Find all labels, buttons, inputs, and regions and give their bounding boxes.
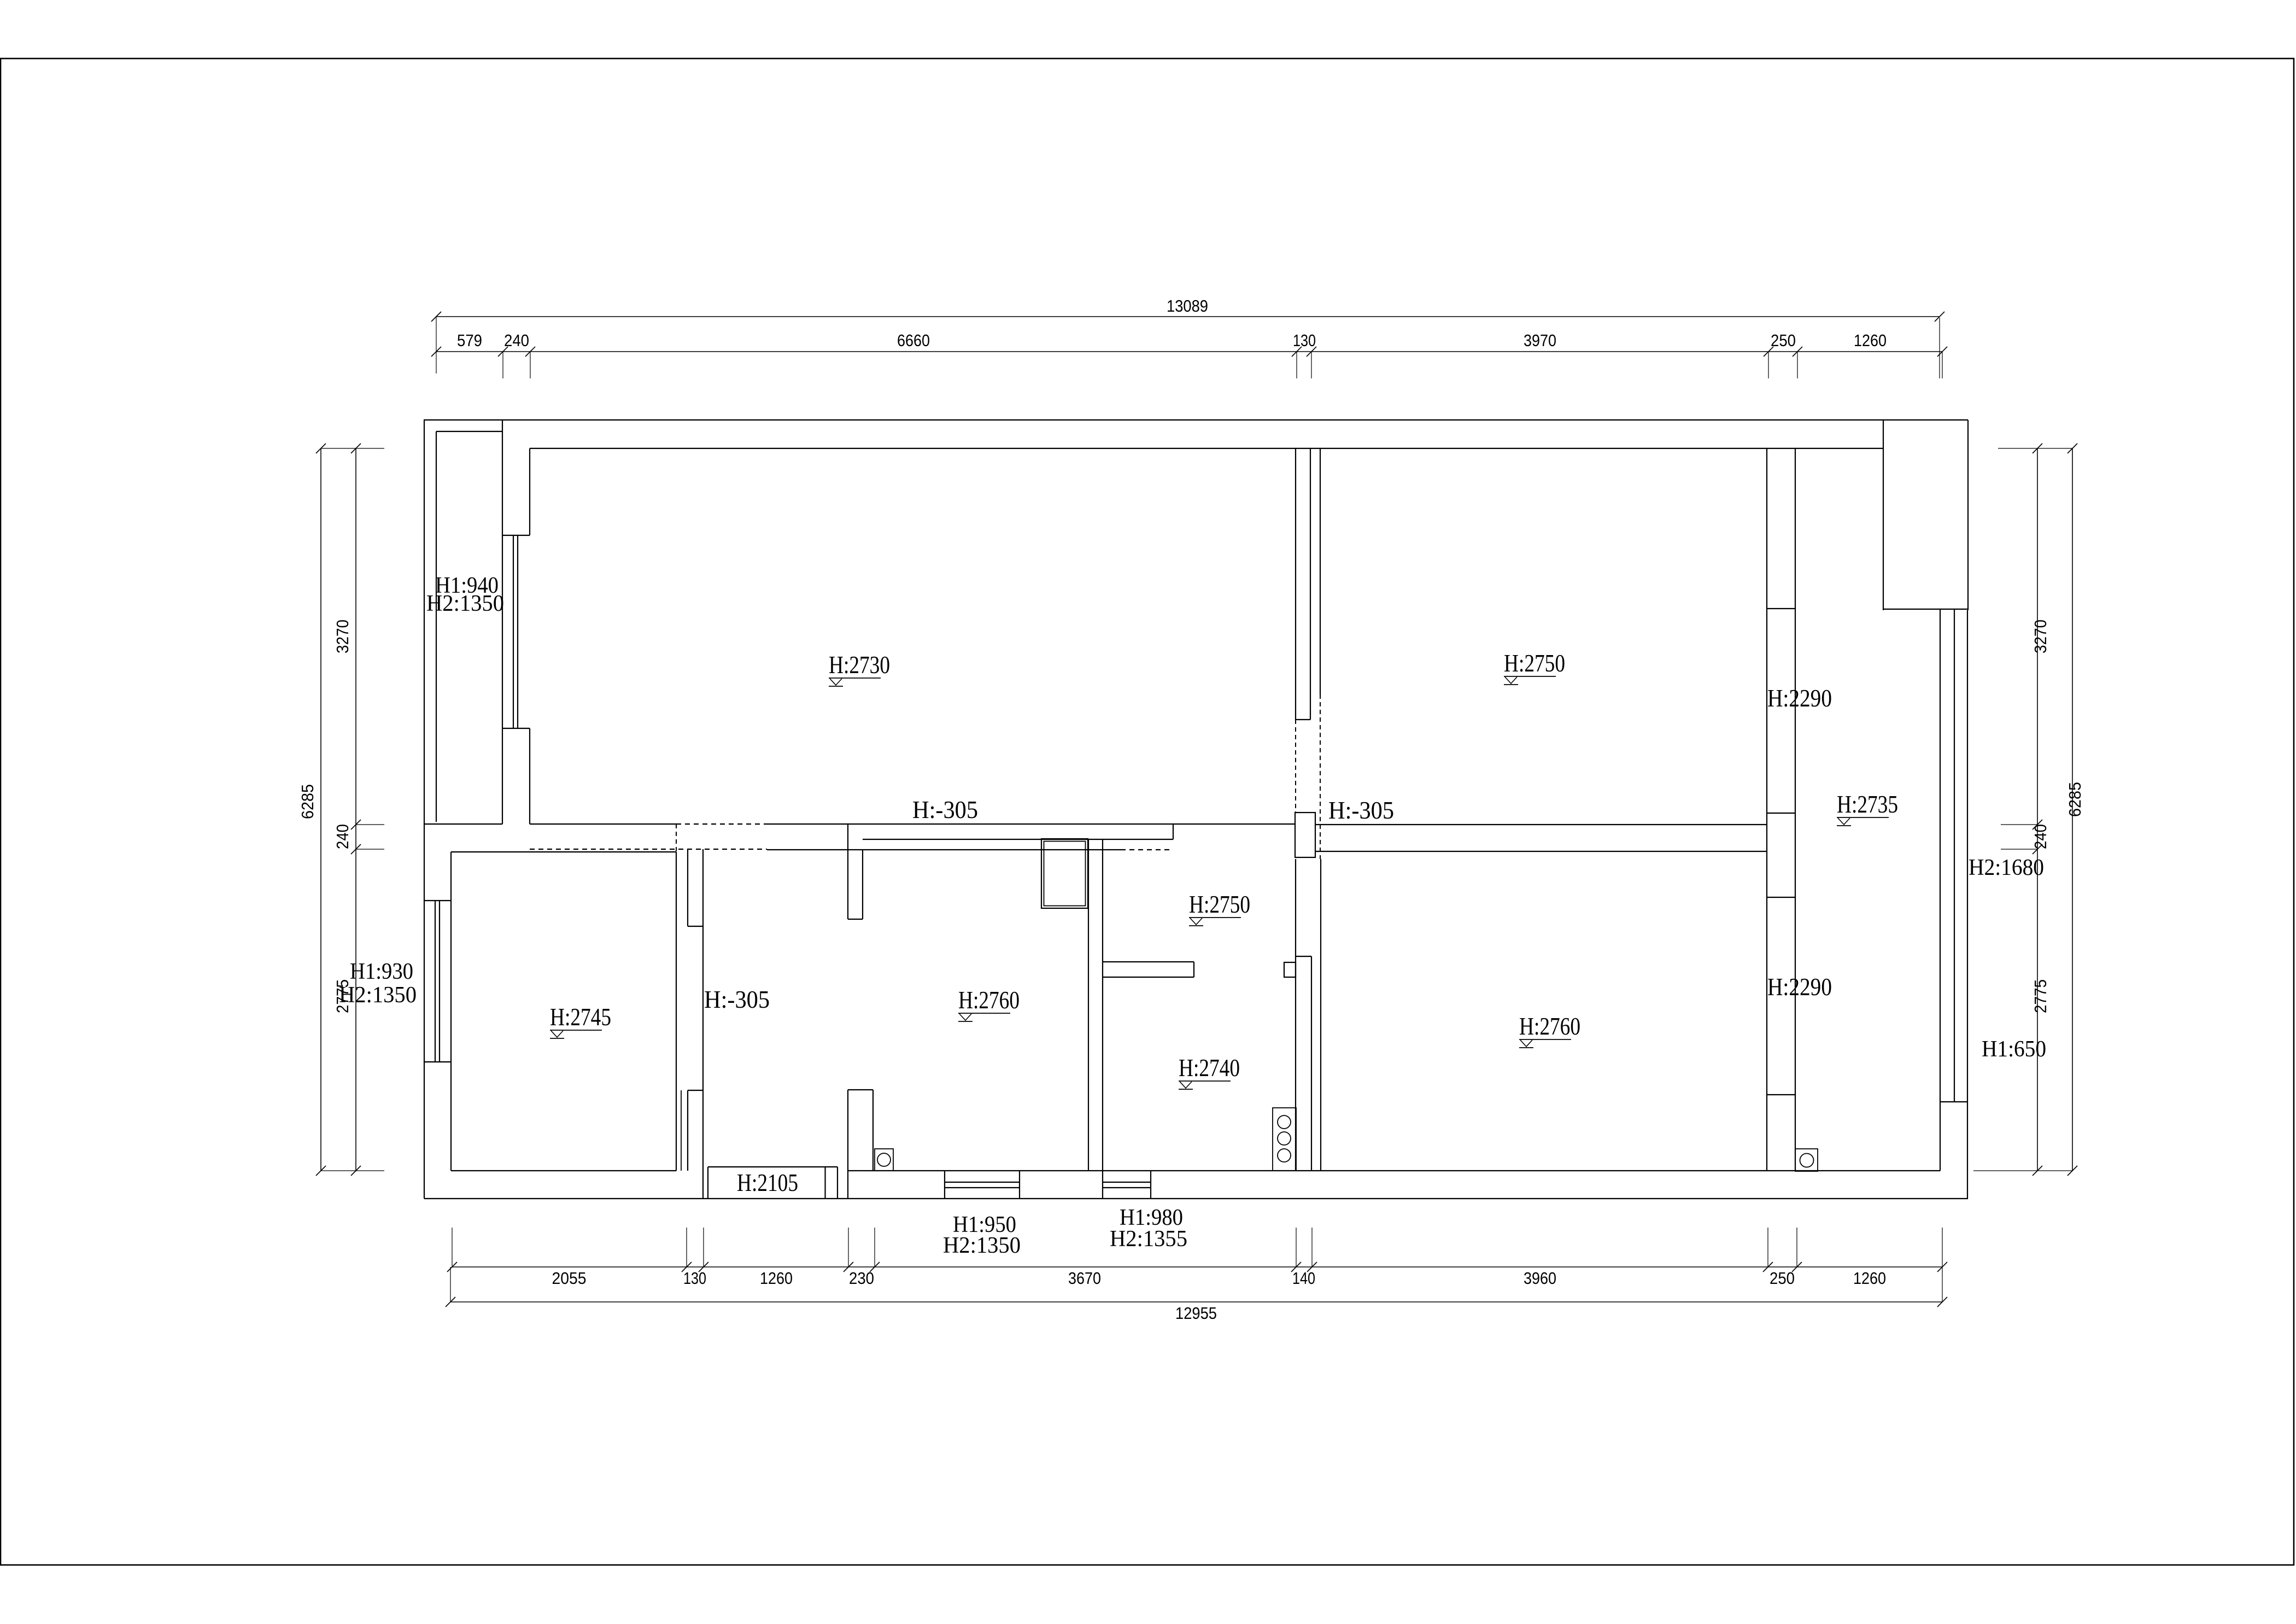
- svg-text:H2:1350: H2:1350: [426, 591, 504, 616]
- svg-text:3960: 3960: [1524, 1269, 1556, 1288]
- svg-text:130: 130: [683, 1269, 706, 1288]
- svg-text:130: 130: [1293, 331, 1316, 350]
- svg-text:240: 240: [2031, 824, 2050, 849]
- svg-text:H2:1350: H2:1350: [943, 1233, 1021, 1258]
- svg-text:H:2760: H:2760: [958, 986, 1020, 1014]
- svg-text:250: 250: [1771, 331, 1796, 350]
- svg-text:1260: 1260: [760, 1269, 793, 1288]
- svg-text:H:2745: H:2745: [550, 1003, 611, 1031]
- svg-text:3670: 3670: [1068, 1269, 1101, 1288]
- svg-text:6285: 6285: [298, 784, 317, 819]
- svg-text:H:-305: H:-305: [704, 985, 770, 1013]
- svg-text:H:2750: H:2750: [1504, 649, 1565, 677]
- svg-text:H:2735: H:2735: [1837, 790, 1898, 818]
- svg-text:H2:1355: H2:1355: [1110, 1226, 1187, 1252]
- svg-text:3270: 3270: [333, 620, 352, 653]
- svg-text:H1:930: H1:930: [350, 959, 413, 984]
- svg-text:6660: 6660: [897, 331, 930, 350]
- svg-text:2775: 2775: [333, 979, 352, 1013]
- svg-text:13089: 13089: [1167, 296, 1208, 316]
- svg-text:1260: 1260: [1853, 1269, 1886, 1288]
- svg-text:H:2740: H:2740: [1179, 1054, 1240, 1082]
- svg-text:3270: 3270: [2031, 620, 2050, 653]
- svg-text:230: 230: [849, 1269, 874, 1288]
- svg-text:H:2730: H:2730: [829, 651, 890, 679]
- svg-text:H:2760: H:2760: [1519, 1012, 1580, 1040]
- svg-text:1260: 1260: [1854, 331, 1887, 350]
- svg-text:250: 250: [1770, 1269, 1795, 1288]
- svg-text:2055: 2055: [552, 1269, 587, 1288]
- svg-text:H:-305: H:-305: [912, 796, 978, 823]
- svg-text:2775: 2775: [2031, 979, 2050, 1013]
- svg-text:240: 240: [504, 331, 529, 350]
- svg-text:H1:650: H1:650: [1982, 1037, 2046, 1062]
- svg-text:140: 140: [1292, 1269, 1315, 1288]
- svg-text:H:2105: H:2105: [737, 1169, 798, 1196]
- svg-text:240: 240: [333, 824, 352, 849]
- svg-text:H:2750: H:2750: [1189, 890, 1250, 918]
- svg-text:H:2290: H:2290: [1767, 973, 1832, 1001]
- svg-text:H:-305: H:-305: [1328, 796, 1394, 824]
- svg-text:H:2290: H:2290: [1767, 684, 1832, 712]
- svg-text:H2:1680: H2:1680: [1969, 855, 2044, 880]
- svg-text:3970: 3970: [1524, 331, 1556, 350]
- svg-text:6285: 6285: [2065, 782, 2084, 817]
- svg-text:579: 579: [457, 331, 482, 350]
- svg-text:12955: 12955: [1175, 1304, 1217, 1323]
